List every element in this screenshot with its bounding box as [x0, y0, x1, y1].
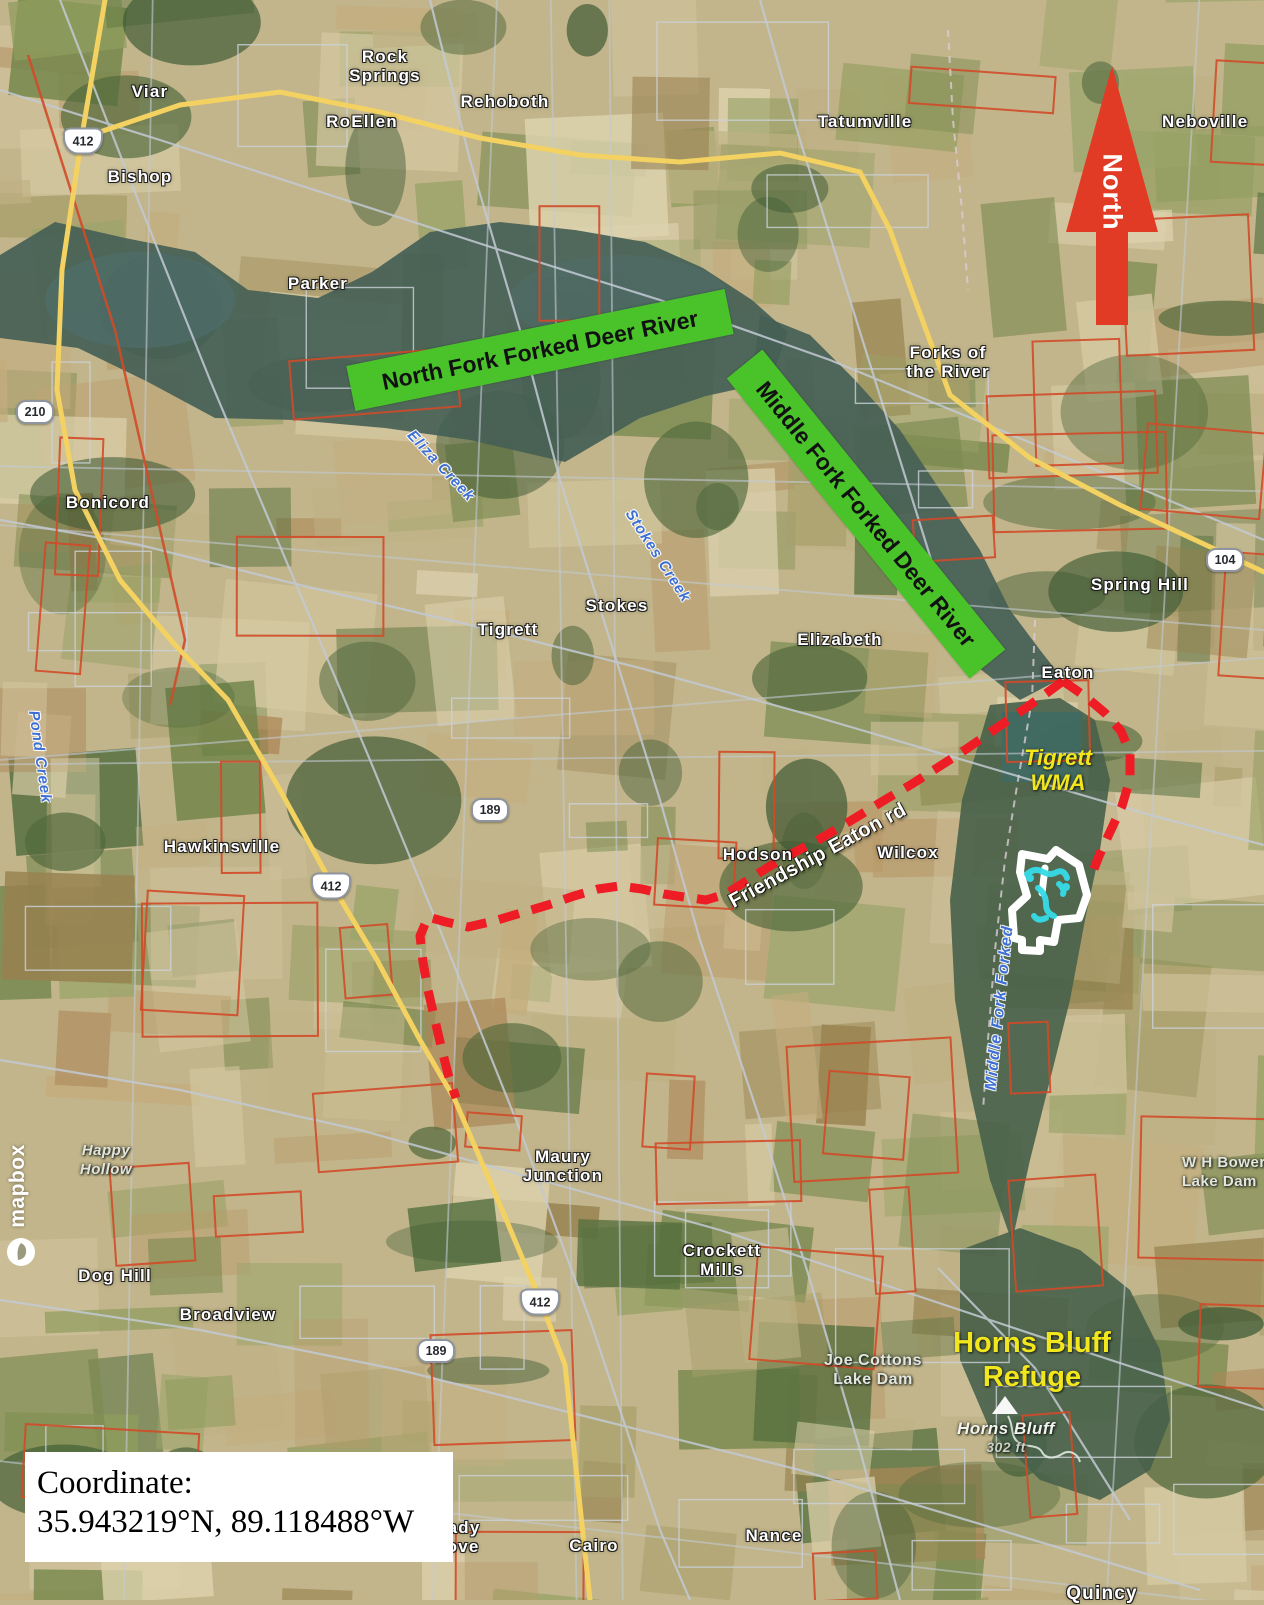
- route-shield-412-northwest: 412: [63, 128, 103, 155]
- town-label-bishop: Bishop: [108, 167, 173, 187]
- town-label-parker: Parker: [288, 274, 348, 294]
- route-shield-189-middle: 189: [471, 798, 509, 822]
- water-label-happy-hollow: Happy Hollow: [80, 1141, 132, 1179]
- town-label-spring-hill: Spring Hill: [1091, 575, 1189, 595]
- town-label-neboville: Neboville: [1162, 112, 1248, 132]
- town-label-nance: Nance: [745, 1526, 802, 1546]
- town-label-tigrett: Tigrett: [478, 620, 539, 640]
- water-label-wh-bowers-lake-dam: W H Bowers Lake Dam: [1182, 1153, 1264, 1191]
- coordinate-title: Coordinate:: [37, 1464, 441, 1503]
- town-label-tatumville: Tatumville: [818, 112, 913, 132]
- route-shield-104: 104: [1206, 548, 1244, 572]
- area-label-horns-bluff-refuge: Horns Bluff Refuge: [953, 1326, 1111, 1394]
- town-label-broadview: Broadview: [180, 1305, 277, 1325]
- town-label-dog-hill: Dog Hill: [78, 1266, 152, 1286]
- route-shield-189-south: 189: [417, 1339, 455, 1363]
- coordinate-box: Coordinate: 35.943219°N, 89.118488°W: [25, 1452, 453, 1562]
- town-label-rehoboth: Rehoboth: [461, 92, 550, 112]
- route-shield-412-middle: 412: [311, 873, 351, 900]
- town-label-quincy: Quincy: [1066, 1583, 1138, 1605]
- town-label-viar: Viar: [132, 82, 169, 102]
- route-shield-412-south: 412: [520, 1289, 560, 1316]
- coordinate-value: 35.943219°N, 89.118488°W: [37, 1503, 441, 1542]
- town-label-eaton: Eaton: [1041, 663, 1094, 683]
- satellite-map-canvas[interactable]: North Fork Forked Deer River Middle Fork…: [0, 0, 1264, 1600]
- town-label-cairo: Cairo: [569, 1536, 618, 1556]
- town-label-hawkinsville: Hawkinsville: [164, 837, 280, 857]
- town-label-roellen: RoEllen: [326, 112, 398, 132]
- town-label-elizabeth: Elizabeth: [797, 630, 882, 650]
- town-label-bonicord: Bonicord: [66, 493, 150, 513]
- area-label-tigrett-wma: Tigrett WMA: [1024, 745, 1092, 795]
- mapbox-wordmark[interactable]: mapbox: [6, 1126, 30, 1246]
- water-label-joe-cottons-lake-dam: Joe Cottons Lake Dam: [824, 1351, 922, 1389]
- north-arrow-label: North: [1097, 154, 1128, 231]
- peak-label-horns-bluff: Horns Bluff 302 ft: [957, 1419, 1055, 1457]
- town-label-forks-of-the-river: Forks of the River: [906, 343, 990, 381]
- town-label-crockett-mills: Crockett Mills: [683, 1241, 762, 1279]
- route-shield-210: 210: [16, 400, 54, 424]
- town-label-stokes: Stokes: [586, 596, 649, 616]
- town-label-maury-junction: Maury Junction: [523, 1147, 603, 1185]
- town-label-rock-springs: Rock Springs: [349, 47, 421, 85]
- town-label-wilcox: Wilcox: [877, 843, 939, 863]
